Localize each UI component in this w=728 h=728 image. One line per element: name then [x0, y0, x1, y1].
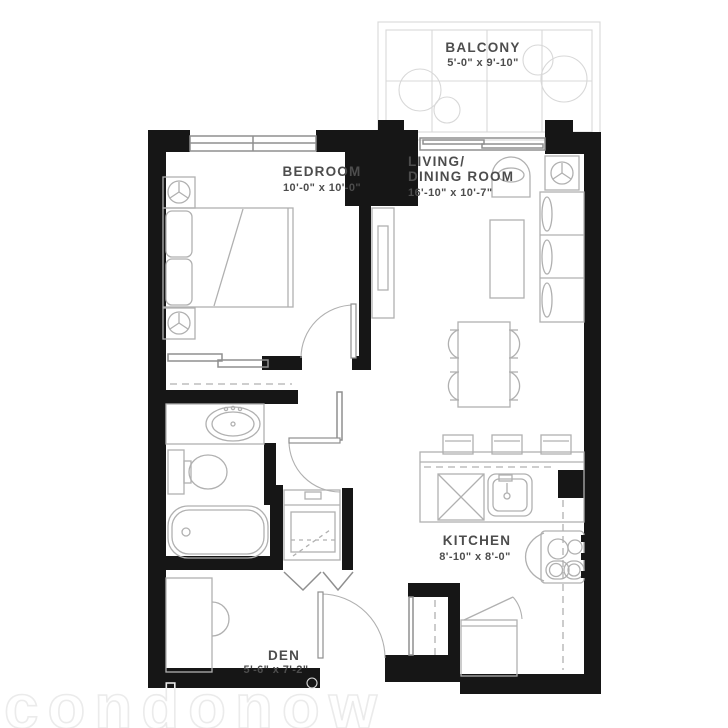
room-label-living-2: DINING ROOM [408, 169, 514, 184]
floorplan-canvas: BEDROOM 10'-0" x 10'-0" [0, 0, 728, 728]
bedroom-window [190, 136, 316, 151]
media-console [372, 208, 394, 318]
nightstand-top [163, 177, 195, 208]
bathroom-door [289, 438, 340, 492]
dishwasher [438, 474, 484, 520]
room-label-kitchen: KITCHEN [443, 533, 511, 548]
room-dims-balcony: 5'-0" x 9'-10" [447, 57, 518, 69]
pillow [166, 259, 192, 305]
desk-chair [212, 602, 229, 636]
wall-entry-closet-top [408, 583, 460, 597]
bedroom-door [301, 304, 356, 358]
wall-laundry-left [270, 485, 283, 570]
watermark-text: condonow [4, 673, 386, 728]
wall-bottom-kitchen [460, 674, 601, 694]
den: DEN 5'-6" x 7'-2" [166, 578, 385, 676]
room-dims-kitchen: 8'-10" x 8'-0" [439, 551, 510, 563]
closet-jamb [409, 597, 413, 655]
fridge-door-open [464, 597, 513, 620]
sliding-door [168, 354, 222, 361]
bathroom [166, 392, 342, 558]
stove [526, 531, 586, 583]
room-dims-bedroom: 10'-0" x 10'-0" [283, 182, 361, 194]
bedroom: BEDROOM 10'-0" x 10'-0" [163, 136, 361, 358]
nightstand-bottom [163, 308, 195, 339]
room-label-balcony: BALCONY [445, 40, 520, 55]
entry-door [318, 592, 385, 658]
dining-table [458, 322, 510, 407]
wall-laundry-right [342, 488, 353, 570]
wall-bedroom-living-thin [359, 206, 371, 359]
wall-kitchen-protrusion [558, 470, 584, 498]
room-label-bedroom: BEDROOM [283, 164, 362, 179]
bed [163, 208, 293, 307]
wall-top-a [148, 130, 190, 152]
wall-foyer-right [448, 588, 460, 674]
door-leaf [318, 592, 323, 658]
walls [148, 130, 601, 694]
bathroom-sink [206, 406, 260, 441]
side-table [545, 156, 579, 190]
bifold-doors [284, 572, 353, 590]
door-leaf [289, 438, 340, 443]
room-label-den: DEN [268, 648, 300, 663]
bar-stools [443, 435, 571, 454]
toilet [168, 450, 227, 494]
burner [568, 540, 582, 554]
fridge [461, 597, 522, 676]
pillow [166, 211, 192, 257]
sliding-door [218, 360, 268, 367]
kitchen-sink [488, 474, 532, 516]
dining-set [448, 322, 519, 407]
wall-right [584, 132, 601, 694]
desk [166, 578, 212, 672]
bathtub [168, 506, 268, 558]
wall-bath-nook [337, 392, 342, 440]
room-label-living-1: LIVING/ [408, 154, 465, 169]
burner [548, 539, 568, 559]
sofa [540, 192, 584, 322]
room-dims-living: 16'-10" x 10'-7" [408, 187, 492, 199]
washer [284, 490, 340, 560]
watermark: condonow [4, 673, 386, 728]
entry-closet [409, 597, 435, 655]
coffee-table [490, 220, 524, 298]
door-leaf [351, 304, 356, 358]
tub-faucet [182, 528, 190, 536]
wall-top-b [316, 130, 348, 152]
floorplan-drawing: BEDROOM 10'-0" x 10'-0" [0, 0, 728, 728]
wall-bathroom-top [166, 390, 298, 404]
